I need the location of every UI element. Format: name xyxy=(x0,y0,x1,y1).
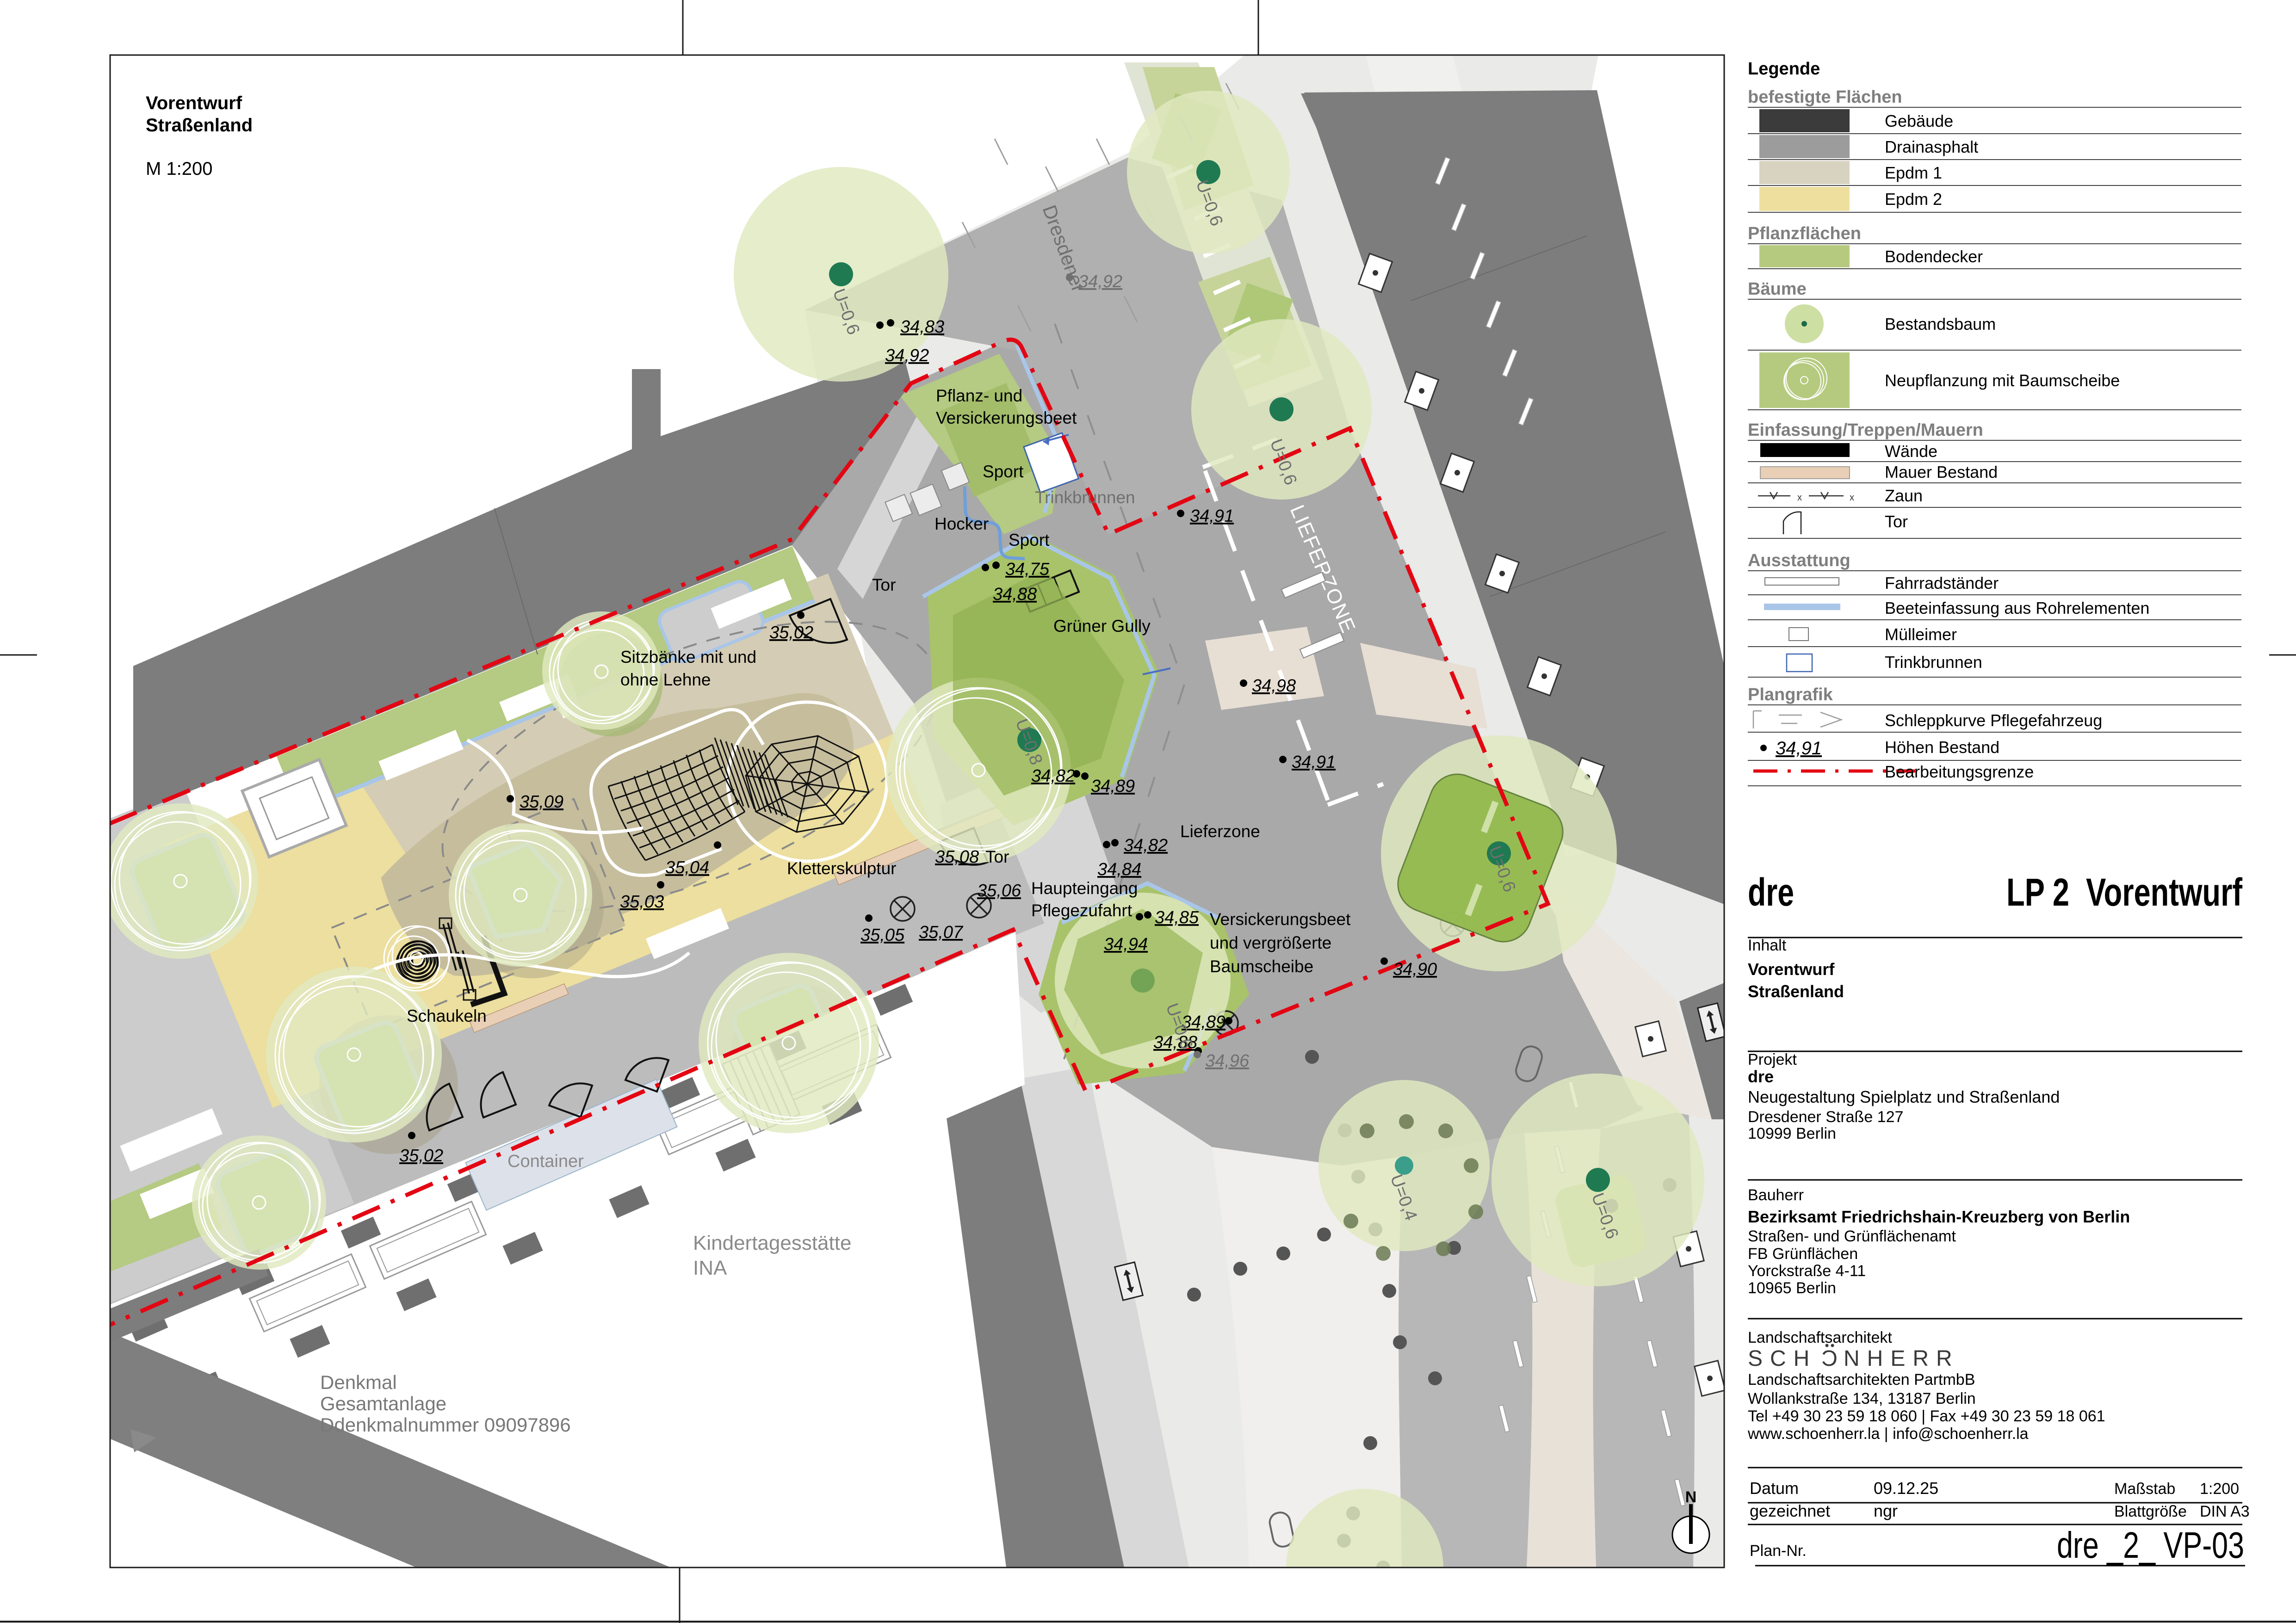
svg-text:10999 Berlin: 10999 Berlin xyxy=(1748,1125,1836,1142)
svg-text:Ddenkmalnummer 09097896: Ddenkmalnummer 09097896 xyxy=(320,1414,571,1436)
svg-text:Neugestaltung Spielplatz und S: Neugestaltung Spielplatz und Straßenland xyxy=(1748,1087,2060,1106)
svg-text:34,91: 34,91 xyxy=(1190,506,1234,526)
svg-text:Projekt: Projekt xyxy=(1748,1051,1797,1068)
svg-text:Mauer Bestand: Mauer Bestand xyxy=(1885,463,1998,481)
svg-text:09.12.25: 09.12.25 xyxy=(1874,1479,1938,1498)
svg-text:Tor: Tor xyxy=(872,575,896,594)
svg-text:Hocker: Hocker xyxy=(934,514,989,533)
svg-text:Landschaftsarchitekt: Landschaftsarchitekt xyxy=(1748,1329,1892,1346)
svg-text:Kletterskulptur: Kletterskulptur xyxy=(787,859,897,878)
svg-text:DIN A3: DIN A3 xyxy=(2200,1503,2250,1520)
svg-text:35,03: 35,03 xyxy=(620,892,664,912)
svg-text:befestigte Flächen: befestigte Flächen xyxy=(1748,87,1902,107)
svg-text:Bezirksamt Friedrichshain-Kreu: Bezirksamt Friedrichshain-Kreuzberg von … xyxy=(1748,1207,2130,1226)
svg-text:Baumscheibe: Baumscheibe xyxy=(1210,957,1313,976)
svg-text:Inhalt: Inhalt xyxy=(1748,937,1787,954)
svg-text:35,04: 35,04 xyxy=(665,858,709,877)
svg-text:Sport: Sport xyxy=(983,462,1024,481)
svg-text:35,07: 35,07 xyxy=(919,923,964,942)
svg-text:34,91: 34,91 xyxy=(1776,738,1822,759)
svg-text:INA: INA xyxy=(693,1257,727,1279)
svg-text:Versickerungsbeet: Versickerungsbeet xyxy=(936,408,1077,427)
svg-text:Trinkbrunnen: Trinkbrunnen xyxy=(1885,653,1982,672)
svg-text:Pflanz- und: Pflanz- und xyxy=(936,386,1022,405)
svg-text:Ausstattung: Ausstattung xyxy=(1748,551,1850,570)
svg-text:Straßenland: Straßenland xyxy=(1748,982,1844,1001)
svg-text:Pflanzflächen: Pflanzflächen xyxy=(1748,224,1861,243)
svg-text:35,08: 35,08 xyxy=(935,847,979,867)
svg-text:35,06: 35,06 xyxy=(977,881,1021,901)
svg-text:x: x xyxy=(1797,493,1802,503)
svg-text:Beeteinfassung aus Rohrelement: Beeteinfassung aus Rohrelementen xyxy=(1885,599,2149,617)
svg-text:34,96: 34,96 xyxy=(1205,1051,1250,1071)
svg-text:Wollankstraße 134, 13187 Berli: Wollankstraße 134, 13187 Berlin xyxy=(1748,1390,1976,1407)
svg-text:M 1:200: M 1:200 xyxy=(146,159,213,179)
svg-text:Tor: Tor xyxy=(1885,512,1908,531)
svg-text:34,92: 34,92 xyxy=(885,346,929,365)
svg-text:Versickerungsbeet: Versickerungsbeet xyxy=(1210,910,1351,929)
svg-text:Zaun: Zaun xyxy=(1885,486,1923,505)
svg-text:Landschaftsarchitekten PartmbB: Landschaftsarchitekten PartmbB xyxy=(1748,1371,1975,1388)
svg-text:34,85: 34,85 xyxy=(1155,908,1199,927)
svg-text:dre _2_ VP-03: dre _2_ VP-03 xyxy=(2057,1524,2244,1566)
svg-text:Mülleimer: Mülleimer xyxy=(1885,625,1957,644)
svg-text:34,89: 34,89 xyxy=(1091,777,1135,796)
svg-text:34,82: 34,82 xyxy=(1031,766,1075,786)
svg-text:Tor: Tor xyxy=(985,847,1009,866)
svg-text:Bodendecker: Bodendecker xyxy=(1885,247,1983,266)
svg-text:Grüner Gully: Grüner Gully xyxy=(1053,617,1151,636)
svg-text:34,98: 34,98 xyxy=(1252,676,1296,696)
svg-text:Gesamtanlage: Gesamtanlage xyxy=(320,1393,446,1414)
svg-text:Schleppkurve Pflegefahrzeug: Schleppkurve Pflegefahrzeug xyxy=(1885,711,2102,730)
svg-text:35,05: 35,05 xyxy=(860,926,905,945)
svg-text:Datum: Datum xyxy=(1750,1479,1799,1498)
svg-text:LP 2 Vorentwurf: LP 2 Vorentwurf xyxy=(2006,870,2243,914)
svg-text:1:200: 1:200 xyxy=(2200,1480,2239,1498)
svg-text:Straßen- und Grünflächenamt: Straßen- und Grünflächenamt xyxy=(1748,1228,1956,1245)
svg-text:SCH: SCH xyxy=(1748,1346,1817,1371)
svg-text:Schaukeln: Schaukeln xyxy=(407,1006,487,1025)
svg-text:34,88: 34,88 xyxy=(993,585,1037,604)
svg-text:Denkmal: Denkmal xyxy=(320,1371,397,1393)
svg-text:Gebäude: Gebäude xyxy=(1885,111,1953,130)
svg-text:NHERR: NHERR xyxy=(1844,1346,1960,1371)
svg-text:ohne Lehne: ohne Lehne xyxy=(620,670,711,689)
svg-text:Trinkbrunnen: Trinkbrunnen xyxy=(1035,488,1135,507)
svg-text:Maßstab: Maßstab xyxy=(2114,1480,2175,1498)
svg-text:34,94: 34,94 xyxy=(1104,935,1148,954)
svg-text:ngr: ngr xyxy=(1874,1501,1898,1520)
svg-text:C: C xyxy=(1821,1346,1838,1371)
svg-text:Blattgröße: Blattgröße xyxy=(2114,1503,2187,1520)
svg-text:Pflegezufahrt: Pflegezufahrt xyxy=(1031,901,1133,920)
svg-text:Bearbeitungsgrenze: Bearbeitungsgrenze xyxy=(1885,762,2034,781)
svg-text:10965 Berlin: 10965 Berlin xyxy=(1748,1279,1836,1297)
svg-text:Legende: Legende xyxy=(1748,59,1820,79)
svg-text:Neupflanzung mit Baumscheibe: Neupflanzung mit Baumscheibe xyxy=(1885,371,2120,390)
svg-text:Plangrafik: Plangrafik xyxy=(1748,685,1833,704)
svg-text:Sport: Sport xyxy=(1009,531,1050,549)
svg-text:gezeichnet: gezeichnet xyxy=(1750,1501,1830,1520)
svg-text:34,75: 34,75 xyxy=(1005,560,1050,579)
svg-text:34,91: 34,91 xyxy=(1292,753,1336,772)
svg-text:Haupteingang: Haupteingang xyxy=(1031,879,1138,898)
svg-text:Bäume: Bäume xyxy=(1748,279,1807,299)
svg-text:Fahrradständer: Fahrradständer xyxy=(1885,574,1999,592)
svg-text:Straßenland: Straßenland xyxy=(146,115,253,136)
svg-text:Sitzbänke mit und: Sitzbänke mit und xyxy=(620,648,756,666)
svg-text:Höhen Bestand: Höhen Bestand xyxy=(1885,738,1999,757)
svg-text:Dresdener Straße 127: Dresdener Straße 127 xyxy=(1748,1108,1903,1126)
svg-text:Lieferzone: Lieferzone xyxy=(1180,822,1260,841)
svg-text:Container: Container xyxy=(507,1152,584,1171)
svg-text:34,83: 34,83 xyxy=(900,317,944,337)
svg-text:Einfassung/Treppen/Mauern: Einfassung/Treppen/Mauern xyxy=(1748,420,1983,440)
svg-text:34,82: 34,82 xyxy=(1124,836,1168,855)
svg-text:Vorentwurf: Vorentwurf xyxy=(1748,960,1835,979)
svg-text:Bauherr: Bauherr xyxy=(1748,1186,1804,1204)
svg-text:Plan-Nr.: Plan-Nr. xyxy=(1750,1542,1807,1560)
svg-text:dre: dre xyxy=(1748,1067,1774,1086)
svg-text:Wände: Wände xyxy=(1885,442,1937,461)
svg-text:35,09: 35,09 xyxy=(520,792,563,812)
svg-text:35,02: 35,02 xyxy=(769,623,813,642)
svg-text:Epdm 2: Epdm 2 xyxy=(1885,190,1942,209)
svg-text:www.schoenherr.la | info@schoe: www.schoenherr.la | info@schoenherr.la xyxy=(1747,1425,2029,1443)
svg-text:34,84: 34,84 xyxy=(1097,860,1141,879)
svg-text:Tel +49 30 23 59 18 060 | Fa: Tel +49 30 23 59 18 060 | Fax +49 30 23 … xyxy=(1748,1407,2105,1425)
svg-text:Kindertagesstätte: Kindertagesstätte xyxy=(693,1232,851,1254)
svg-text:34,90: 34,90 xyxy=(1393,960,1437,979)
svg-text:dre: dre xyxy=(1748,870,1794,914)
svg-text:N: N xyxy=(1685,1488,1697,1506)
svg-text:Bestandsbaum: Bestandsbaum xyxy=(1885,315,1996,333)
svg-text:und vergrößerte: und vergrößerte xyxy=(1210,933,1331,952)
svg-text:x: x xyxy=(1850,493,1854,503)
svg-text:Drainasphalt: Drainasphalt xyxy=(1885,137,1978,156)
svg-text:Yorckstraße 4-11: Yorckstraße 4-11 xyxy=(1748,1262,1866,1280)
svg-text:35,02: 35,02 xyxy=(399,1146,443,1166)
svg-text:FB Grünflächen: FB Grünflächen xyxy=(1748,1245,1858,1263)
svg-text:Epdm 1: Epdm 1 xyxy=(1885,163,1942,182)
svg-text:Vorentwurf: Vorentwurf xyxy=(146,93,242,113)
